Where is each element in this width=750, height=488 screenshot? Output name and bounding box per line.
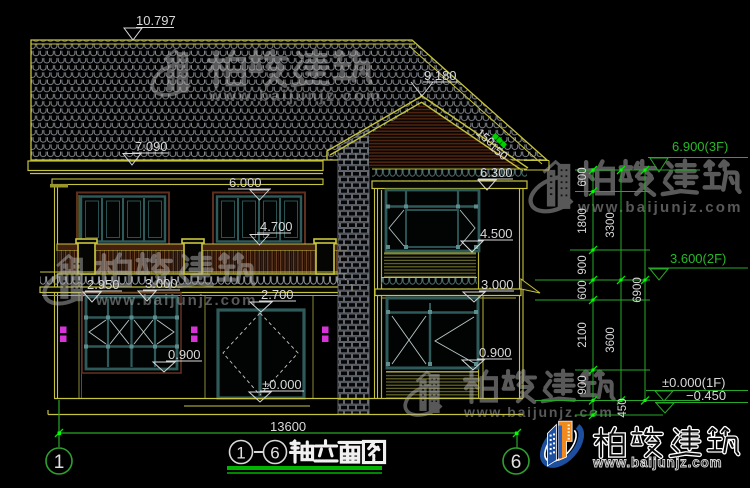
svg-text:13600: 13600: [270, 419, 306, 434]
svg-text:0.900: 0.900: [168, 347, 201, 362]
svg-text:www.baijunjz.com: www.baijunjz.com: [95, 292, 257, 309]
svg-text:6.300: 6.300: [480, 165, 513, 180]
svg-text:3600: 3600: [605, 327, 617, 353]
svg-text:4.500: 4.500: [480, 226, 513, 241]
svg-text:2.950: 2.950: [87, 277, 120, 292]
svg-text:9.180: 9.180: [424, 68, 457, 83]
svg-text:1800: 1800: [577, 208, 589, 234]
svg-text:www.baijunjz.com: www.baijunjz.com: [208, 88, 382, 105]
svg-text:7.090: 7.090: [135, 139, 168, 154]
svg-text:6.000: 6.000: [229, 175, 262, 190]
svg-text:www.baijunjz.com: www.baijunjz.com: [577, 199, 743, 216]
svg-text:450: 450: [617, 398, 629, 417]
svg-text:2.700: 2.700: [261, 287, 294, 302]
svg-text:±0.000: ±0.000: [262, 377, 302, 392]
svg-text:3.000: 3.000: [145, 276, 178, 291]
svg-text:900: 900: [577, 255, 589, 274]
svg-text:4.700: 4.700: [260, 219, 293, 234]
svg-text:3.600(2F): 3.600(2F): [670, 251, 726, 266]
svg-text:600: 600: [577, 167, 589, 186]
svg-text:6900: 6900: [632, 277, 644, 303]
svg-text:900: 900: [577, 375, 589, 394]
svg-text:6: 6: [270, 444, 279, 463]
svg-text:0.900: 0.900: [479, 345, 512, 360]
svg-text:600: 600: [577, 280, 589, 299]
svg-text:3300: 3300: [605, 212, 617, 238]
svg-text:1: 1: [54, 452, 65, 473]
svg-text:10.797: 10.797: [136, 13, 176, 28]
svg-text:www.baijunjz.com: www.baijunjz.com: [592, 455, 722, 470]
svg-text:2100: 2100: [577, 322, 589, 348]
svg-text:3.000: 3.000: [481, 277, 514, 292]
svg-text:1: 1: [236, 444, 245, 463]
svg-text:6: 6: [511, 452, 522, 473]
svg-text:6.900(3F): 6.900(3F): [672, 139, 728, 154]
